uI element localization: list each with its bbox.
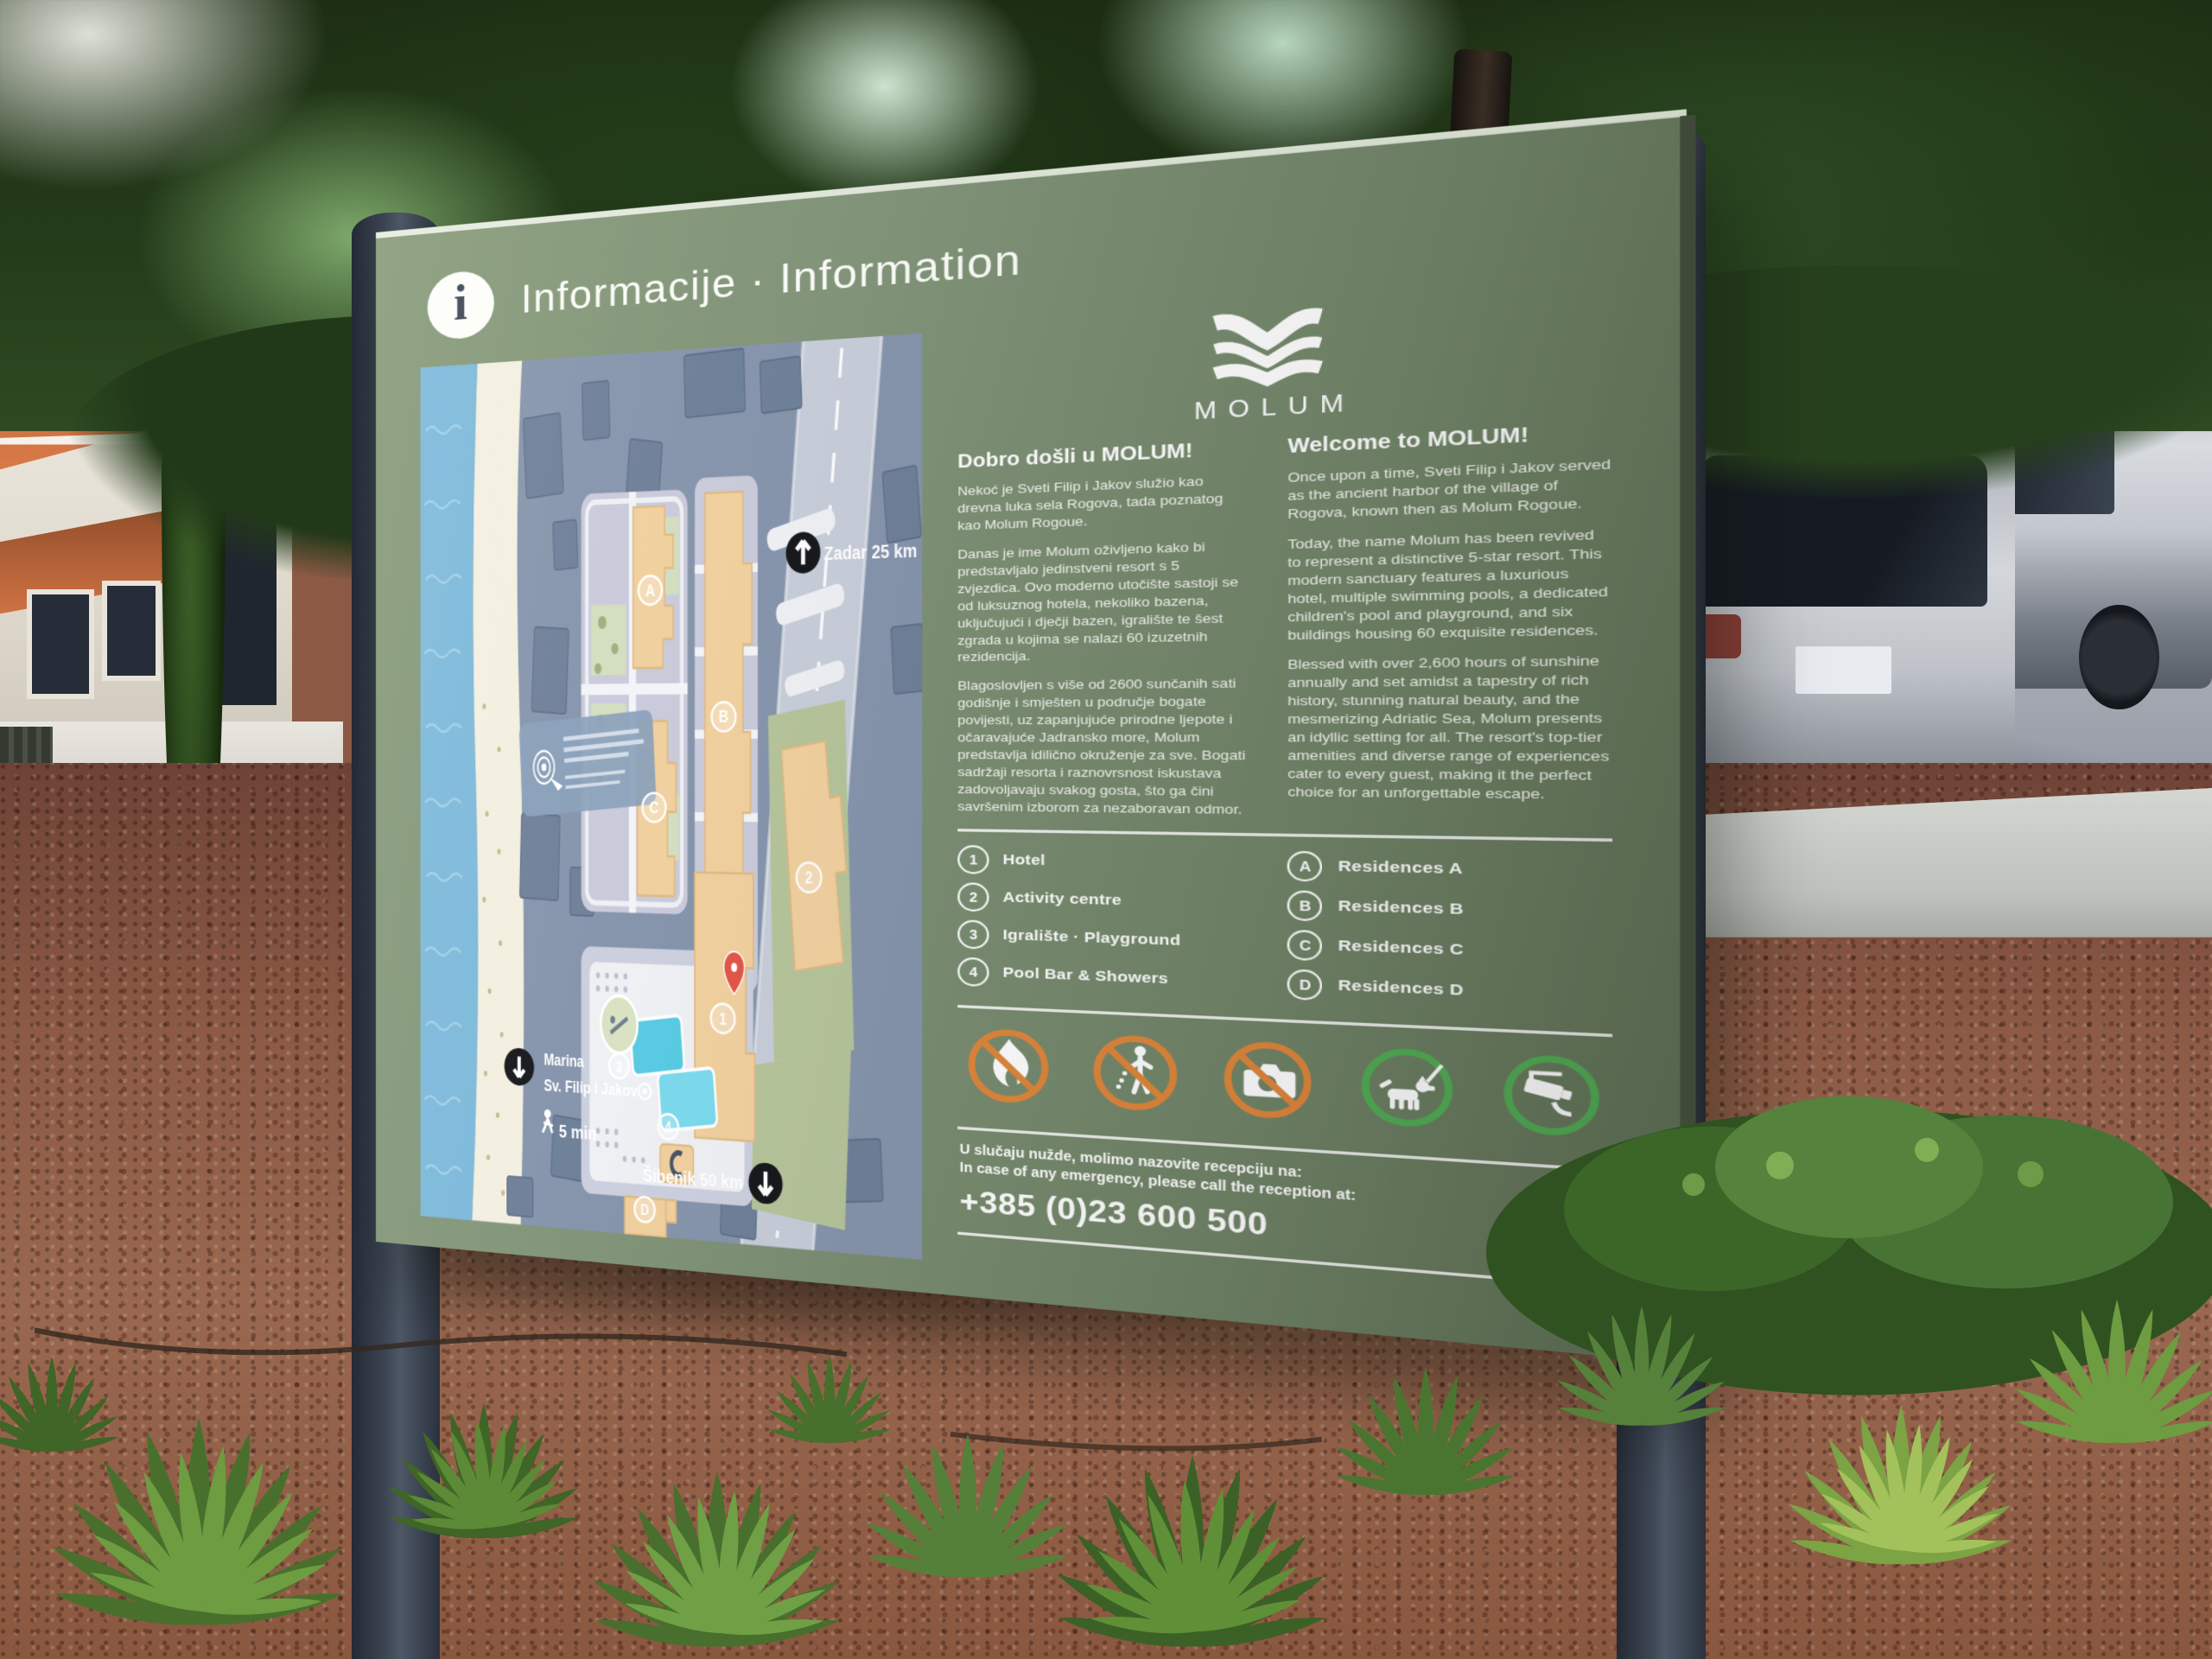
molum-logo: MOLUM — [1183, 297, 1356, 427]
legend-badge: A — [1287, 850, 1323, 881]
map-sea — [421, 363, 479, 1220]
heading-english: Welcome to MOLUM! — [1287, 420, 1612, 459]
map-label-marina: Marina — [544, 1052, 585, 1071]
svg-text:1: 1 — [719, 1009, 727, 1028]
legend-label: Residences B — [1338, 897, 1464, 918]
house-window — [27, 589, 95, 699]
paragraph: Once upon a time, Sveti Filip i Jakov se… — [1287, 454, 1612, 523]
svg-text:A: A — [645, 582, 655, 600]
map-beach — [473, 360, 524, 1224]
no-open-fire-icon — [964, 1023, 1053, 1109]
legend-badge: 4 — [957, 957, 988, 987]
emergency-contact: U slučaju nužde, molimo nazovite recepci… — [957, 1126, 1612, 1288]
column-english: Welcome to MOLUM! Once upon a time, Svet… — [1287, 420, 1612, 836]
legend-badge: 2 — [957, 882, 988, 912]
legend-label: Pool Bar & Showers — [1003, 964, 1168, 988]
house-window — [102, 581, 161, 681]
legend-item-residences-d: D Residences D — [1287, 969, 1612, 1013]
legend-label: Residences D — [1338, 976, 1464, 1000]
legend-badge: 3 — [957, 919, 988, 950]
legend-badge: D — [1287, 969, 1323, 1001]
paragraph: Blessed with over 2,600 hours of sunshin… — [1287, 652, 1612, 804]
legend-label: Activity centre — [1003, 888, 1122, 909]
map-info-card — [519, 709, 657, 817]
heading-croatian: Dobro došli u MOLUM! — [957, 437, 1248, 474]
paragraph: Blagoslovljen s više od 2600 sunčanih sa… — [957, 674, 1248, 818]
dog-on-leash-icon — [1357, 1041, 1458, 1133]
legend-label: Igralište · Playground — [1003, 926, 1181, 950]
map-label-zadar: Zadar 25 km — [824, 540, 918, 564]
legend-item-residences-b: B Residences B — [1287, 890, 1612, 930]
legend-badge: 1 — [957, 844, 988, 874]
paragraph: Danas je ime Molum oživljeno kako bi pre… — [957, 537, 1248, 666]
legend-item-residences-c: C Residences C — [1287, 929, 1612, 970]
car-wheel — [2079, 605, 2158, 709]
legend-label: Residences A — [1338, 857, 1463, 878]
cctv-icon — [1498, 1048, 1605, 1142]
legend-badge: B — [1287, 890, 1323, 921]
svg-text:2: 2 — [805, 868, 813, 887]
information-sign-panel: i Informacije · Information — [376, 116, 1680, 1363]
photo-scene: i Informacije · Information — [0, 0, 2212, 1659]
legend-item-playground: 3 Igralište · Playground — [957, 919, 1248, 958]
info-icon: i — [428, 269, 494, 340]
license-plate — [1796, 646, 1891, 694]
svg-text:D: D — [640, 1203, 649, 1220]
panel-side-edge — [1680, 114, 1695, 1363]
legend-item-residences-a: A Residences A — [1287, 850, 1612, 888]
svg-text:C: C — [650, 798, 659, 817]
paragraph: Today, the name Molum has been revived t… — [1287, 524, 1612, 644]
sign-title: Informacije · Information — [521, 236, 1022, 322]
legend-badge: C — [1287, 929, 1323, 960]
resort-map: Zadar 25 km Šibenik 50 km Marina Sv. Fil… — [421, 333, 923, 1259]
svg-text:4: 4 — [665, 1120, 672, 1136]
logo-wordmark: MOLUM — [1183, 389, 1356, 426]
legend-label: Residences C — [1338, 937, 1464, 959]
map-legend: 1 Hotel 2 Activity centre 3 Igralište · … — [957, 828, 1612, 1022]
no-photography-icon — [1220, 1035, 1317, 1125]
svg-text:3: 3 — [616, 1059, 623, 1076]
legend-item-activity-centre: 2 Activity centre — [957, 882, 1248, 919]
legend-item-hotel: 1 Hotel — [957, 844, 1248, 880]
legend-label: Hotel — [1003, 851, 1046, 869]
logo-wave-icon — [1201, 298, 1338, 393]
map-label-walk-time: 5 min — [559, 1121, 597, 1143]
svg-text:B: B — [719, 708, 728, 726]
paragraph: Nekoć je Sveti Filip i Jakov služio kao … — [957, 470, 1248, 534]
no-littering-icon — [1090, 1029, 1183, 1117]
column-croatian: Dobro došli u MOLUM! Nekoć je Sveti Fili… — [957, 437, 1248, 830]
legend-item-pool-bar: 4 Pool Bar & Showers — [957, 957, 1248, 997]
